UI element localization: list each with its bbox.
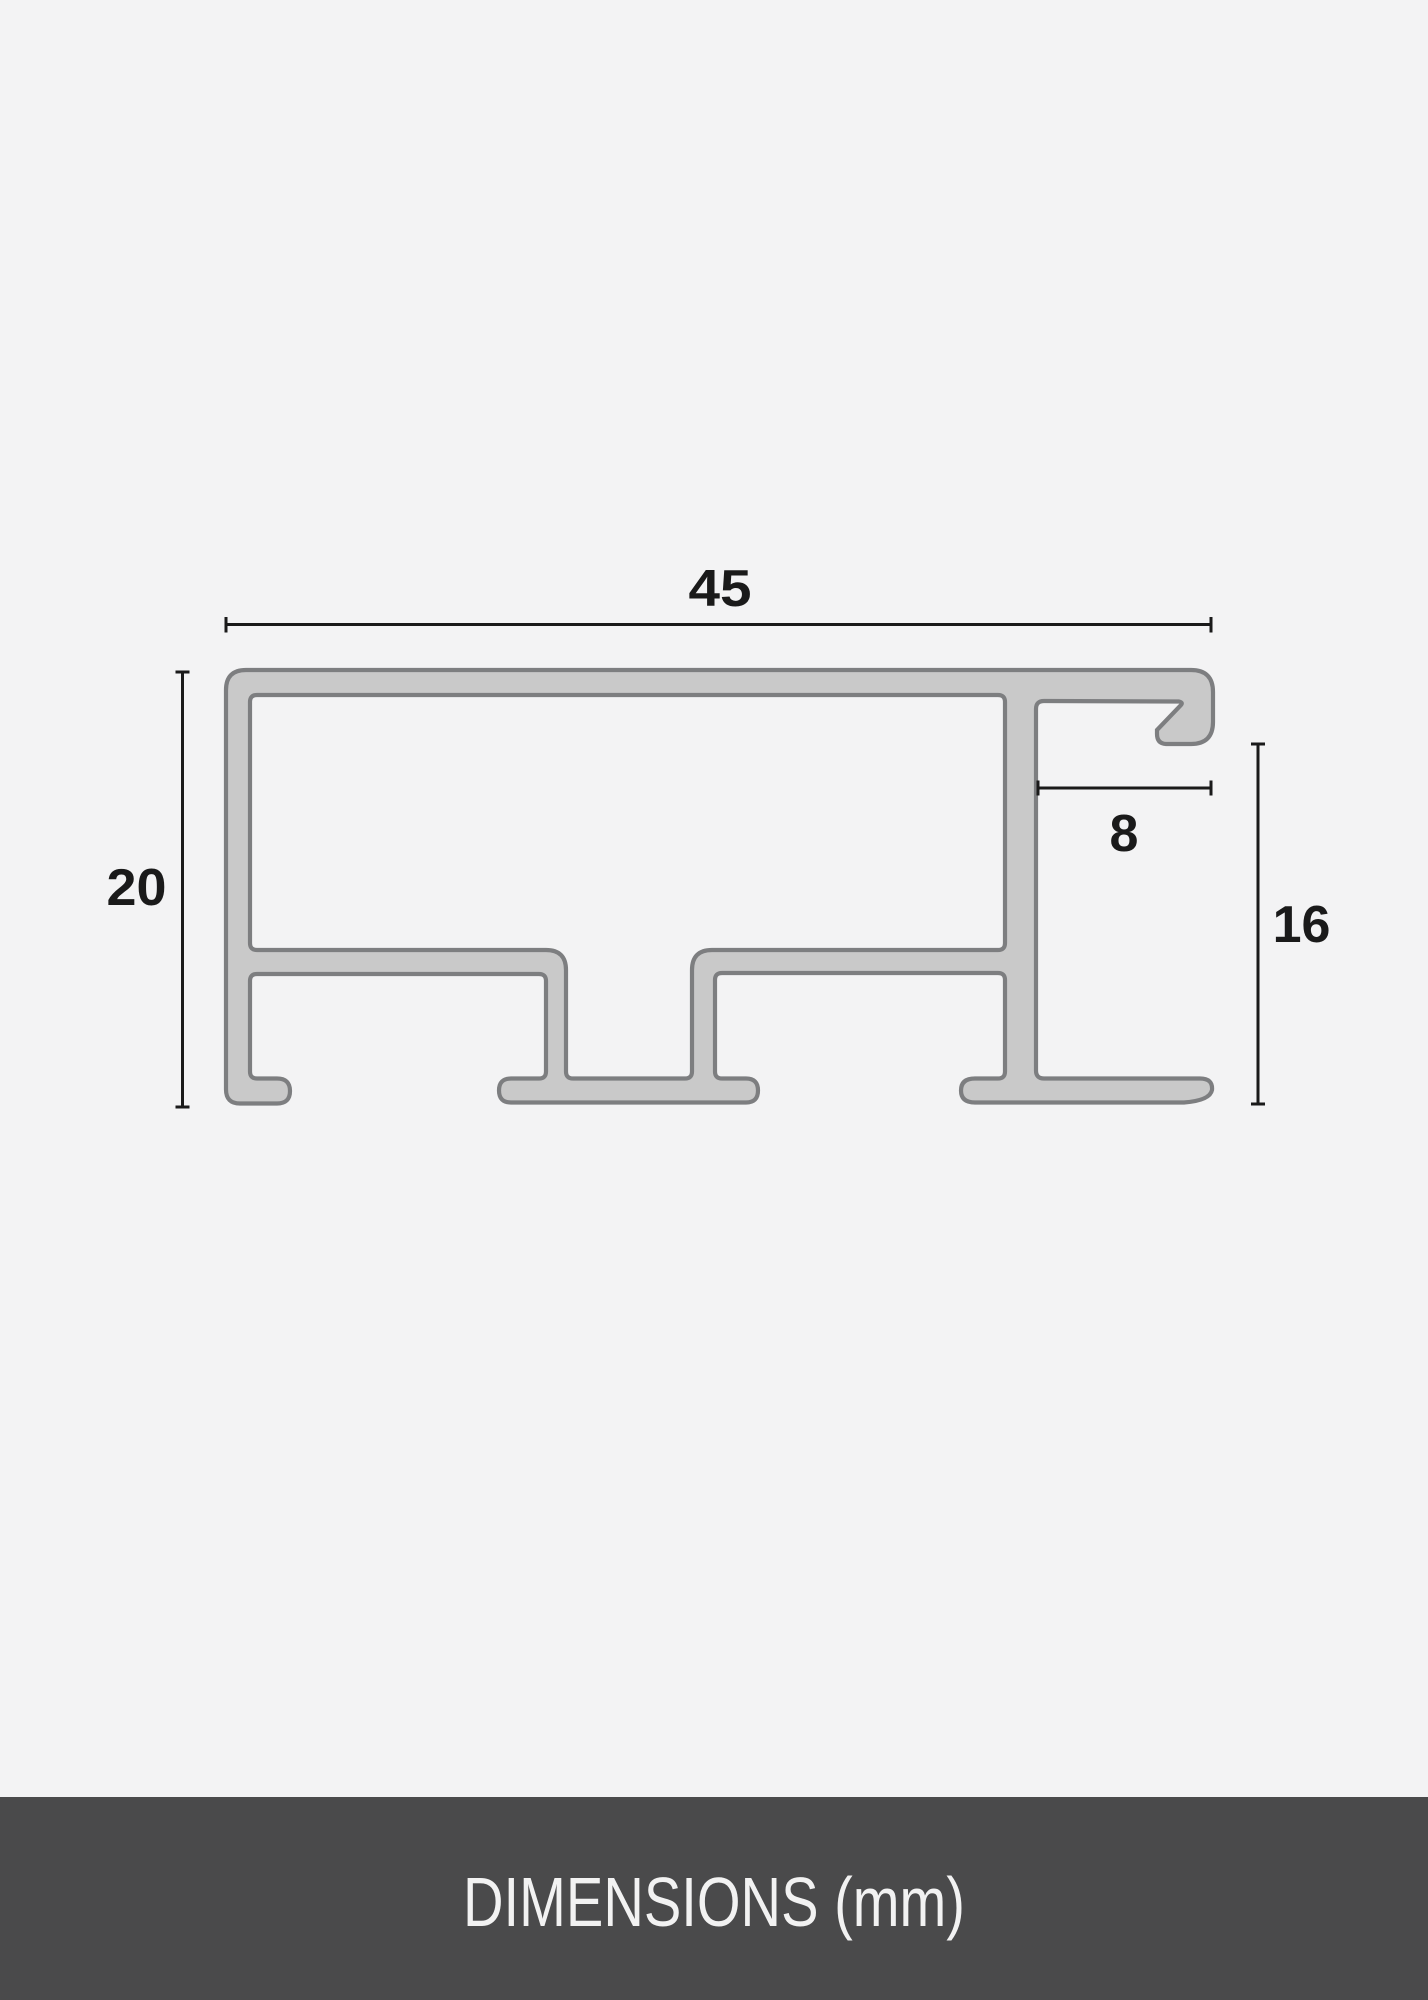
svg-text:20: 20 <box>107 859 167 917</box>
svg-text:DIMENSIONS (mm): DIMENSIONS (mm) <box>463 1863 965 1941</box>
svg-text:45: 45 <box>689 560 752 618</box>
svg-text:8: 8 <box>1110 805 1139 863</box>
svg-text:16: 16 <box>1273 896 1331 954</box>
